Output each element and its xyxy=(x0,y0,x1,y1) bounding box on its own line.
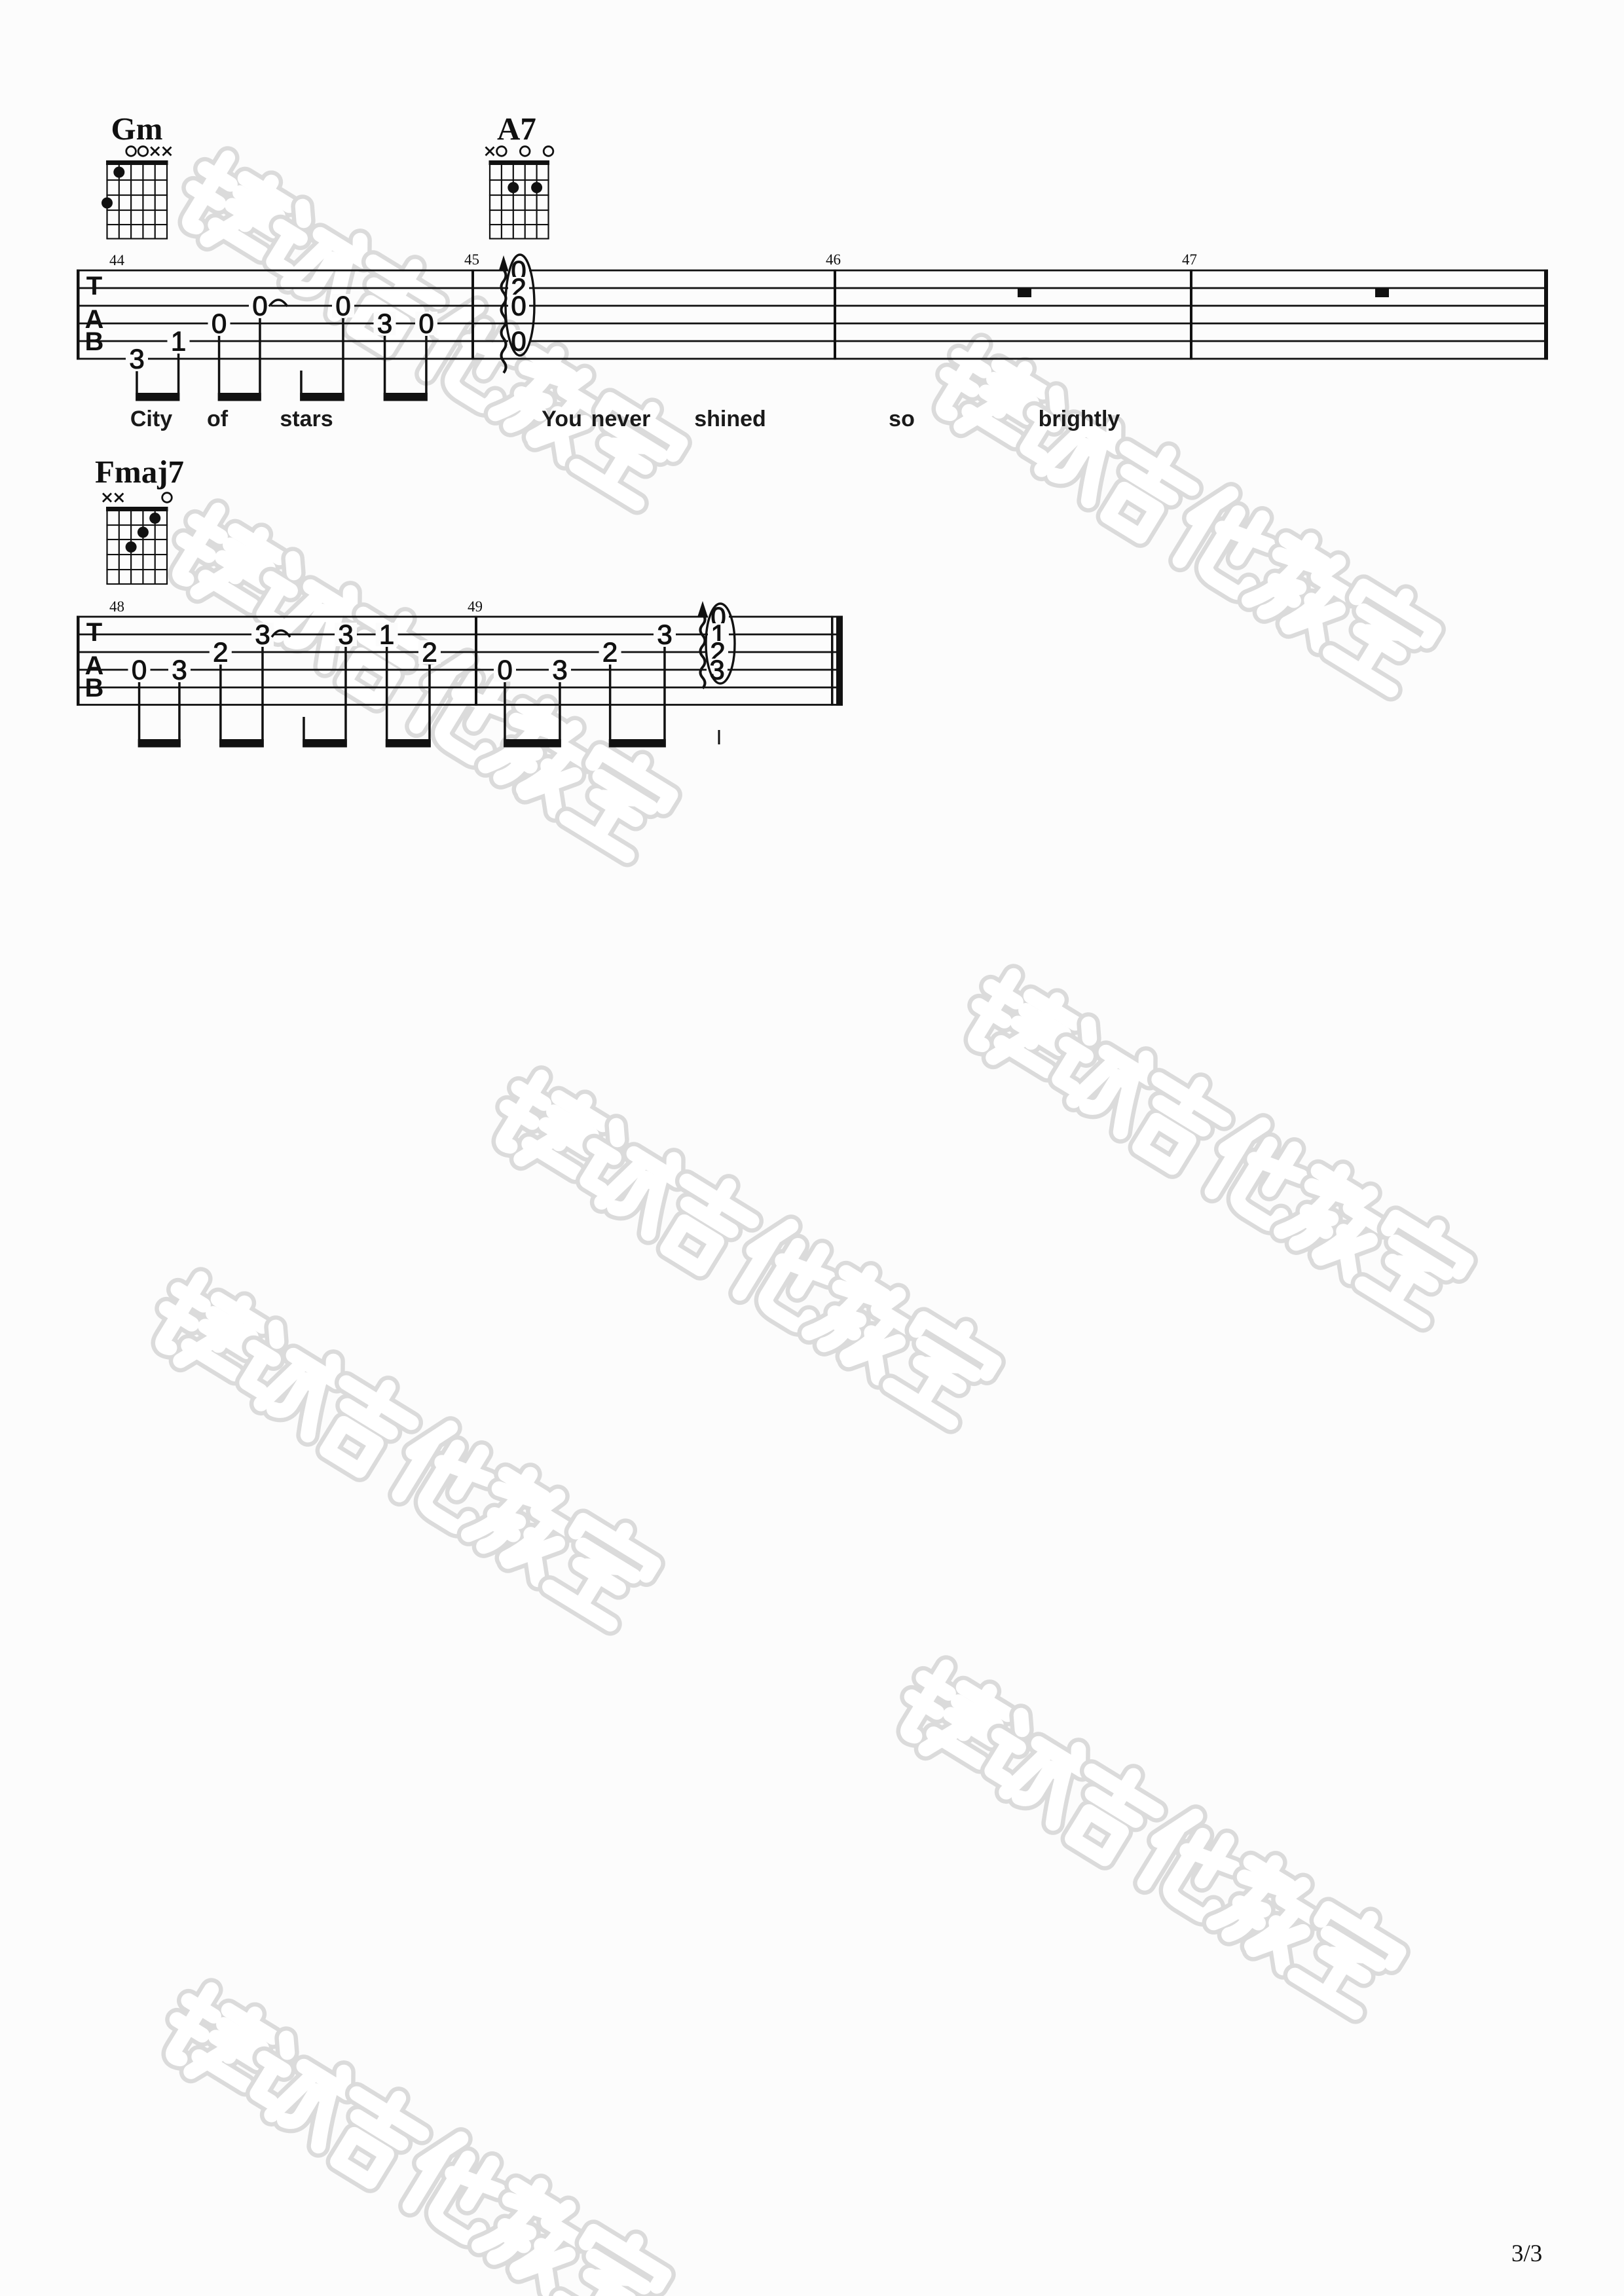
svg-text:45: 45 xyxy=(464,251,479,268)
svg-text:3: 3 xyxy=(172,655,187,685)
svg-text:3: 3 xyxy=(255,619,270,650)
svg-text:0: 0 xyxy=(212,308,227,339)
svg-text:2: 2 xyxy=(602,637,618,668)
svg-text:0: 0 xyxy=(511,291,526,321)
svg-text:47: 47 xyxy=(1182,251,1197,268)
svg-text:48: 48 xyxy=(109,598,124,615)
svg-text:3: 3 xyxy=(377,308,392,339)
svg-text:B: B xyxy=(85,674,104,702)
svg-text:3: 3 xyxy=(338,619,353,650)
svg-text:Gm: Gm xyxy=(111,111,163,147)
svg-text:3/3: 3/3 xyxy=(1511,2240,1542,2267)
svg-text:A7: A7 xyxy=(497,111,536,147)
svg-text:never: never xyxy=(591,407,651,431)
svg-text:44: 44 xyxy=(109,252,125,268)
svg-text:of: of xyxy=(207,407,229,431)
svg-text:1: 1 xyxy=(171,326,186,357)
svg-text:3: 3 xyxy=(552,655,567,685)
svg-text:T: T xyxy=(86,618,102,647)
svg-text:0: 0 xyxy=(497,655,512,685)
svg-text:0: 0 xyxy=(132,655,147,685)
svg-text:49: 49 xyxy=(468,598,483,615)
svg-text:stars: stars xyxy=(280,407,333,431)
svg-text:shined: shined xyxy=(694,407,766,431)
svg-text:City: City xyxy=(130,407,172,431)
svg-text:46: 46 xyxy=(826,251,841,268)
svg-text:0: 0 xyxy=(335,291,350,321)
svg-text:1: 1 xyxy=(379,619,394,650)
svg-text:0: 0 xyxy=(418,308,434,339)
svg-text:brightly: brightly xyxy=(1039,407,1120,431)
svg-text:T: T xyxy=(86,272,102,301)
svg-text:3: 3 xyxy=(657,619,672,650)
svg-text:0: 0 xyxy=(252,291,267,321)
svg-text:3: 3 xyxy=(709,655,724,685)
svg-text:2: 2 xyxy=(213,637,228,668)
svg-text:3: 3 xyxy=(129,344,144,374)
svg-text:Fmaj7: Fmaj7 xyxy=(95,454,184,490)
svg-text:2: 2 xyxy=(422,637,437,668)
svg-text:B: B xyxy=(85,327,104,356)
svg-text:so: so xyxy=(889,407,915,431)
svg-text:You: You xyxy=(542,407,582,431)
